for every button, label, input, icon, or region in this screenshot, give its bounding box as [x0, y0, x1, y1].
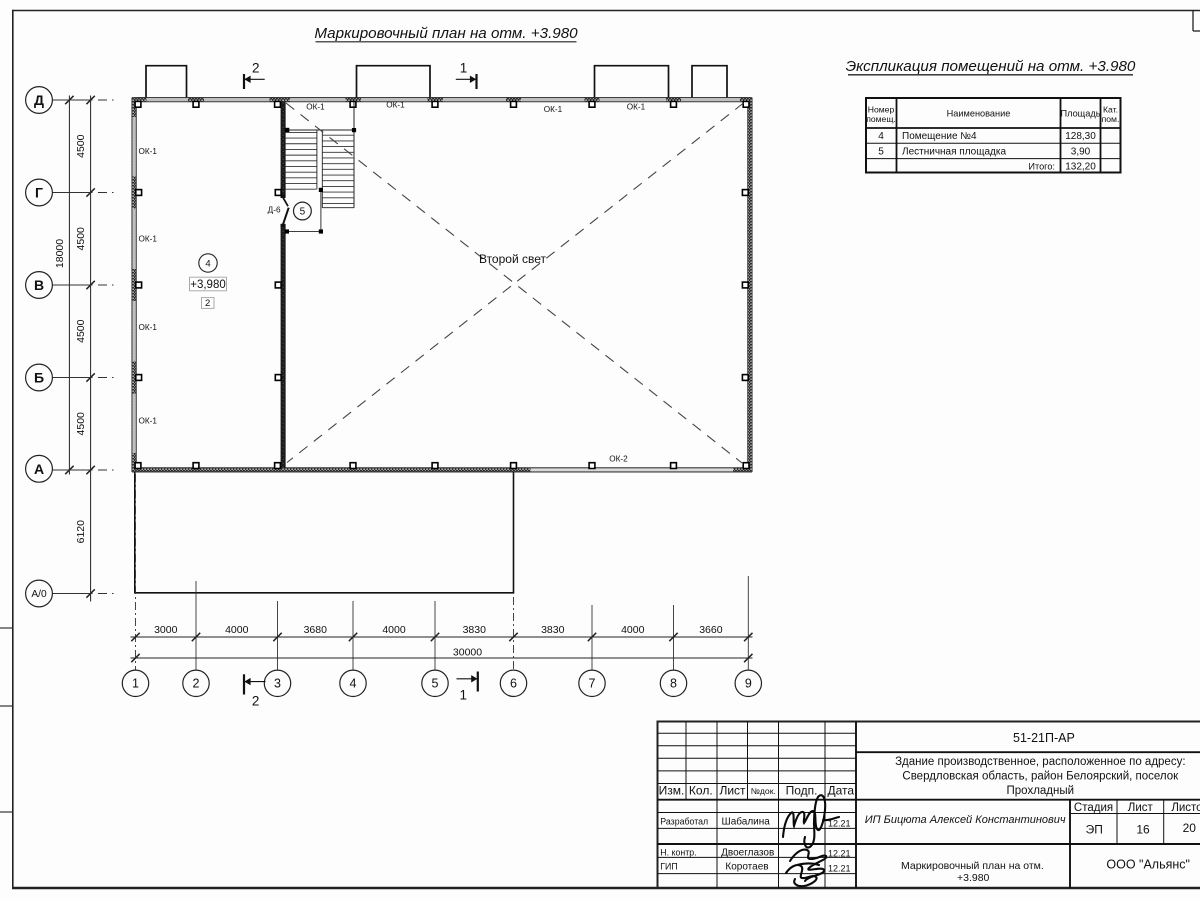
svg-text:5: 5 [300, 207, 306, 218]
svg-text:4: 4 [205, 258, 210, 269]
svg-text:3680: 3680 [304, 624, 328, 636]
svg-text:ОК-1: ОК-1 [306, 103, 325, 112]
svg-text:2: 2 [193, 677, 200, 691]
svg-text:4000: 4000 [382, 624, 406, 636]
svg-text:ОК-1: ОК-1 [139, 147, 158, 156]
svg-text:Маркировочный план на отм.: Маркировочный план на отм. [901, 860, 1044, 872]
svg-text:ИП Бицюта Алексей Константинов: ИП Бицюта Алексей Константинович [865, 814, 1066, 826]
svg-text:Разработал: Разработал [660, 817, 708, 827]
svg-text:Здание производственное, распо: Здание производственное, расположенное п… [895, 756, 1185, 768]
svg-text:Кол.: Кол. [689, 783, 713, 797]
svg-text:51-21П-АР: 51-21П-АР [1013, 731, 1075, 745]
svg-text:+3,980: +3,980 [190, 279, 226, 291]
svg-text:Коротаев: Коротаев [725, 862, 768, 873]
svg-text:Помещение №4: Помещение №4 [902, 131, 977, 142]
svg-text:В: В [34, 277, 44, 293]
svg-text:2: 2 [252, 693, 260, 708]
svg-text:Листов: Листов [1171, 802, 1200, 814]
svg-text:18000: 18000 [54, 239, 66, 268]
svg-text:Площадь: Площадь [1061, 109, 1101, 119]
svg-text:3: 3 [274, 677, 281, 691]
svg-text:1: 1 [460, 687, 468, 702]
svg-text:ОК-1: ОК-1 [627, 103, 646, 112]
svg-text:3660: 3660 [699, 624, 723, 636]
svg-text:3000: 3000 [154, 624, 178, 636]
svg-text:Маркировочный план на отм. +3.: Маркировочный план на отм. +3.980 [314, 25, 578, 42]
svg-text:Д-6: Д-6 [268, 205, 281, 214]
svg-text:Лист: Лист [719, 783, 746, 797]
svg-text:Н. контр.: Н. контр. [660, 847, 696, 857]
svg-text:2: 2 [252, 61, 260, 76]
svg-text:4500: 4500 [75, 319, 87, 343]
svg-text:Д: Д [34, 92, 44, 108]
svg-text:ГИП: ГИП [660, 862, 677, 872]
svg-text:ОК-1: ОК-1 [386, 101, 405, 110]
svg-text:пом.: пом. [1102, 114, 1120, 124]
svg-text:4500: 4500 [75, 412, 87, 436]
svg-text:12.21: 12.21 [828, 864, 851, 874]
svg-text:5: 5 [432, 677, 439, 691]
svg-text:4: 4 [878, 131, 884, 142]
svg-text:ОК-1: ОК-1 [139, 235, 158, 244]
svg-text:2: 2 [205, 298, 210, 309]
svg-text:3,90: 3,90 [1071, 147, 1091, 158]
svg-text:30000: 30000 [453, 646, 482, 658]
svg-text:Наименование: Наименование [947, 109, 1011, 119]
svg-text:132,20: 132,20 [1065, 161, 1096, 172]
svg-text:Лист: Лист [1128, 802, 1154, 814]
svg-text:6: 6 [510, 677, 517, 691]
svg-text:1: 1 [460, 61, 468, 76]
svg-text:Свердловская область, район Бе: Свердловская область, район Белоярский, … [902, 770, 1179, 782]
svg-text:Изм.: Изм. [659, 783, 685, 797]
svg-text:4500: 4500 [75, 227, 87, 251]
svg-text:Второй свет: Второй свет [479, 252, 547, 266]
svg-text:4000: 4000 [621, 624, 645, 636]
svg-text:ОК-1: ОК-1 [139, 417, 158, 426]
svg-text:16: 16 [1136, 823, 1150, 837]
svg-text:128,30: 128,30 [1065, 131, 1096, 142]
svg-text:А: А [34, 461, 44, 477]
svg-text:8: 8 [670, 677, 677, 691]
svg-text:Двоеглазов: Двоеглазов [721, 847, 774, 858]
svg-text:ОК-1: ОК-1 [139, 323, 158, 332]
svg-text:ЭП: ЭП [1086, 823, 1103, 837]
svg-text:помещ.: помещ. [866, 114, 896, 124]
svg-text:Итого:: Итого: [1028, 161, 1055, 171]
svg-text:Кат.: Кат. [1103, 104, 1118, 114]
svg-text:1: 1 [132, 677, 139, 691]
svg-text:4: 4 [350, 677, 357, 691]
svg-text:Лестничная площадка: Лестничная площадка [902, 147, 1006, 158]
svg-text:3830: 3830 [541, 624, 565, 636]
svg-text:Шабалина: Шабалина [722, 816, 771, 828]
svg-text:Прохладный: Прохладный [1007, 785, 1075, 797]
svg-text:4500: 4500 [75, 134, 87, 158]
svg-text:3830: 3830 [463, 624, 487, 636]
svg-text:А/0: А/0 [31, 589, 47, 600]
svg-text:9: 9 [745, 677, 752, 691]
svg-text:ОК-2: ОК-2 [609, 454, 628, 463]
svg-text:12.21: 12.21 [828, 848, 851, 858]
svg-text:Дата: Дата [828, 783, 855, 797]
svg-text:20: 20 [1183, 821, 1197, 835]
svg-text:Г: Г [35, 185, 43, 201]
svg-text:4000: 4000 [225, 624, 249, 636]
svg-text:7: 7 [589, 677, 596, 691]
svg-text:Б: Б [34, 370, 44, 386]
svg-text:6120: 6120 [75, 520, 87, 544]
svg-text:5: 5 [878, 147, 884, 158]
svg-text:Экспликация помещений на отм.: Экспликация помещений на отм. +3.980 [846, 58, 1136, 75]
svg-text:ОК-1: ОК-1 [544, 105, 563, 114]
svg-text:№док.: №док. [751, 786, 776, 796]
svg-text:+3.980: +3.980 [957, 872, 990, 884]
svg-text:ООО "Альянс": ООО "Альянс" [1106, 857, 1190, 871]
svg-text:Стадия: Стадия [1074, 802, 1113, 814]
svg-text:Номер: Номер [868, 104, 895, 114]
svg-text:Подп.: Подп. [786, 783, 818, 797]
